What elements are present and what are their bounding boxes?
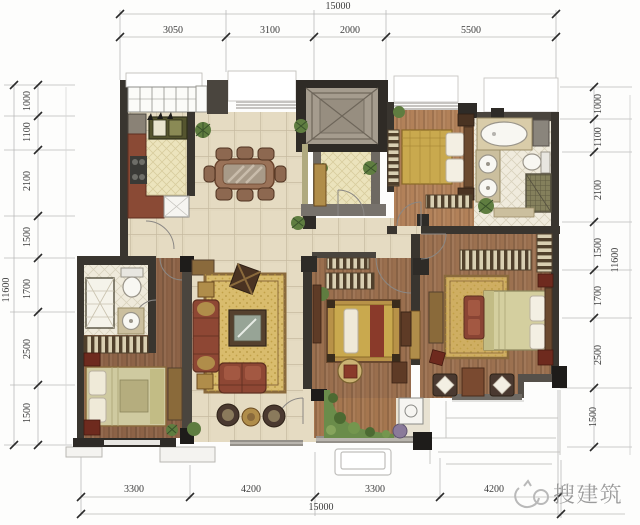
svg-text:2000: 2000 xyxy=(340,25,360,36)
svg-text:3300: 3300 xyxy=(124,484,144,495)
svg-text:1700: 1700 xyxy=(22,279,33,299)
svg-text:2500: 2500 xyxy=(22,339,33,359)
svg-text:1500: 1500 xyxy=(588,407,599,427)
svg-text:1500: 1500 xyxy=(22,227,33,247)
svg-text:1500: 1500 xyxy=(22,403,33,423)
svg-text:4200: 4200 xyxy=(241,484,261,495)
svg-text:1500: 1500 xyxy=(593,238,604,258)
svg-text:15000: 15000 xyxy=(326,1,351,12)
svg-text:4200: 4200 xyxy=(484,484,504,495)
svg-text:1100: 1100 xyxy=(22,122,33,142)
svg-text:11600: 11600 xyxy=(1,278,12,303)
svg-text:2500: 2500 xyxy=(593,345,604,365)
svg-text:1000: 1000 xyxy=(22,91,33,111)
svg-text:3050: 3050 xyxy=(163,25,183,36)
svg-text:3100: 3100 xyxy=(260,25,280,36)
svg-text:1100: 1100 xyxy=(593,127,604,147)
svg-text:1000: 1000 xyxy=(593,94,604,114)
svg-text:5500: 5500 xyxy=(461,25,481,36)
svg-text:2100: 2100 xyxy=(593,180,604,200)
svg-text:11600: 11600 xyxy=(610,248,621,273)
svg-text:15000: 15000 xyxy=(309,502,334,513)
svg-text:3300: 3300 xyxy=(365,484,385,495)
svg-text:2100: 2100 xyxy=(22,171,33,191)
svg-text:1700: 1700 xyxy=(593,286,604,306)
